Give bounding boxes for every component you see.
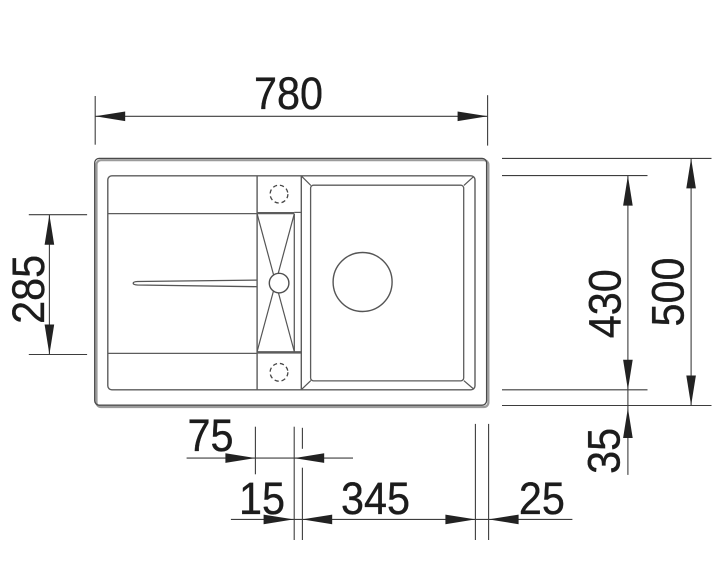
svg-text:345: 345 [341, 473, 410, 524]
svg-text:25: 25 [519, 473, 565, 524]
svg-text:35: 35 [579, 428, 630, 474]
svg-text:285: 285 [3, 255, 54, 324]
svg-text:430: 430 [580, 269, 631, 338]
svg-text:780: 780 [254, 68, 323, 119]
svg-text:75: 75 [188, 410, 234, 461]
svg-text:500: 500 [643, 258, 694, 327]
svg-text:15: 15 [239, 473, 285, 524]
